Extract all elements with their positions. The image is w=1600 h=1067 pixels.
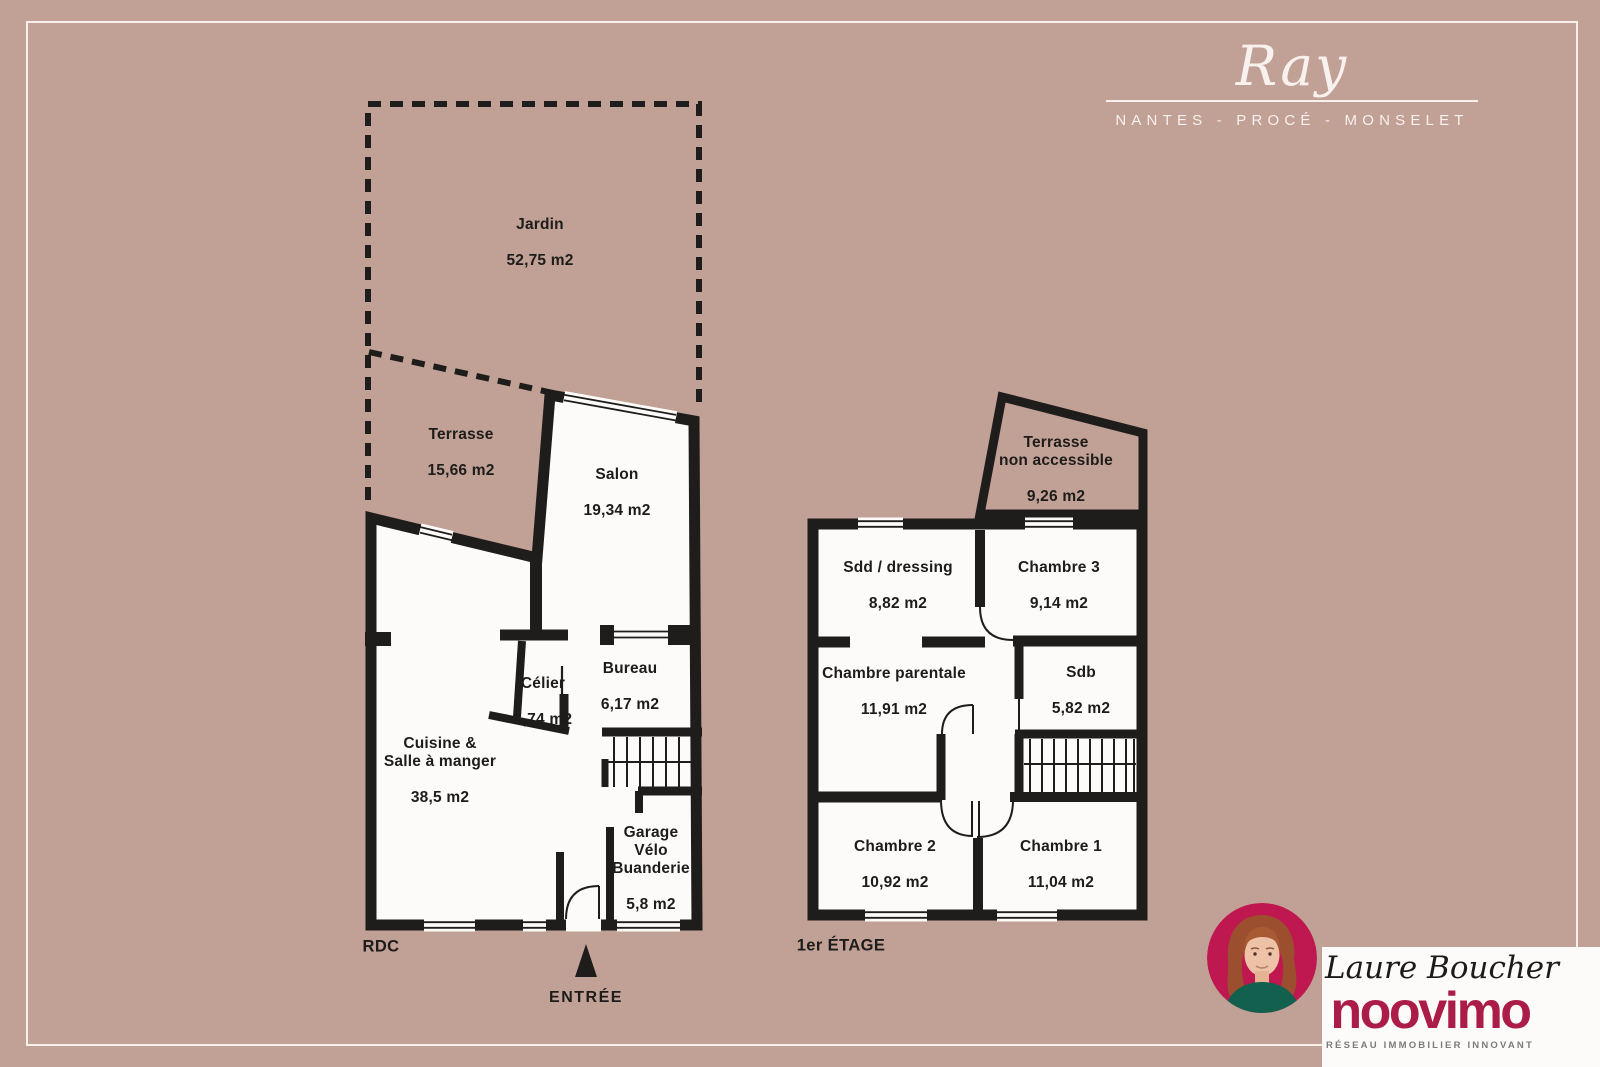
room-label-jardin: Jardin 52,75 m2 xyxy=(506,198,573,288)
room-label-sdd-dressing: Sdd / dressing 8,82 m2 xyxy=(843,541,953,631)
room-label-cuisine: Cuisine & Salle à manger 38,5 m2 xyxy=(384,717,496,825)
room-label-sdb: Sdb 5,82 m2 xyxy=(1052,646,1110,736)
noovimo-tagline: RÉSEAU IMMOBILIER INNOVANT xyxy=(1325,1040,1535,1051)
room-label-bureau: Bureau 6,17 m2 xyxy=(601,642,659,732)
room-label-terrasse-non-accessible: Terrasse non accessible 9,26 m2 xyxy=(999,416,1113,524)
room-label-terrasse: Terrasse 15,66 m2 xyxy=(427,408,494,498)
entrance-arrow-icon xyxy=(575,944,597,977)
room-label-chambre-2: Chambre 2 10,92 m2 xyxy=(854,820,936,910)
entrance-label: ENTRÉE xyxy=(549,989,623,1007)
floor-label-rdc: RDC xyxy=(363,938,400,957)
floor-plans-drawing xyxy=(0,0,1600,1067)
room-label-chambre-3: Chambre 3 9,14 m2 xyxy=(1018,541,1100,631)
floor-label-1er-etage: 1er ÉTAGE xyxy=(797,937,886,956)
agent-branding: Laure Boucher noovimo RÉSEAU IMMOBILIER … xyxy=(1325,948,1535,1051)
room-label-celier: Célier 1,74 m2 xyxy=(514,657,572,747)
room-label-chambre-parentale: Chambre parentale 11,91 m2 xyxy=(822,647,966,737)
noovimo-logo: noovimo xyxy=(1325,988,1535,1034)
room-label-chambre-1: Chambre 1 11,04 m2 xyxy=(1020,820,1102,910)
agent-avatar xyxy=(1207,903,1317,1013)
room-label-salon: Salon 19,34 m2 xyxy=(583,448,650,538)
agent-photo-illustration xyxy=(1207,903,1317,1013)
flyer-page: Ray NANTES - PROCÉ - MONSELET xyxy=(0,0,1600,1067)
room-label-garage: Garage Vélo Buanderie 5,8 m2 xyxy=(612,806,690,932)
